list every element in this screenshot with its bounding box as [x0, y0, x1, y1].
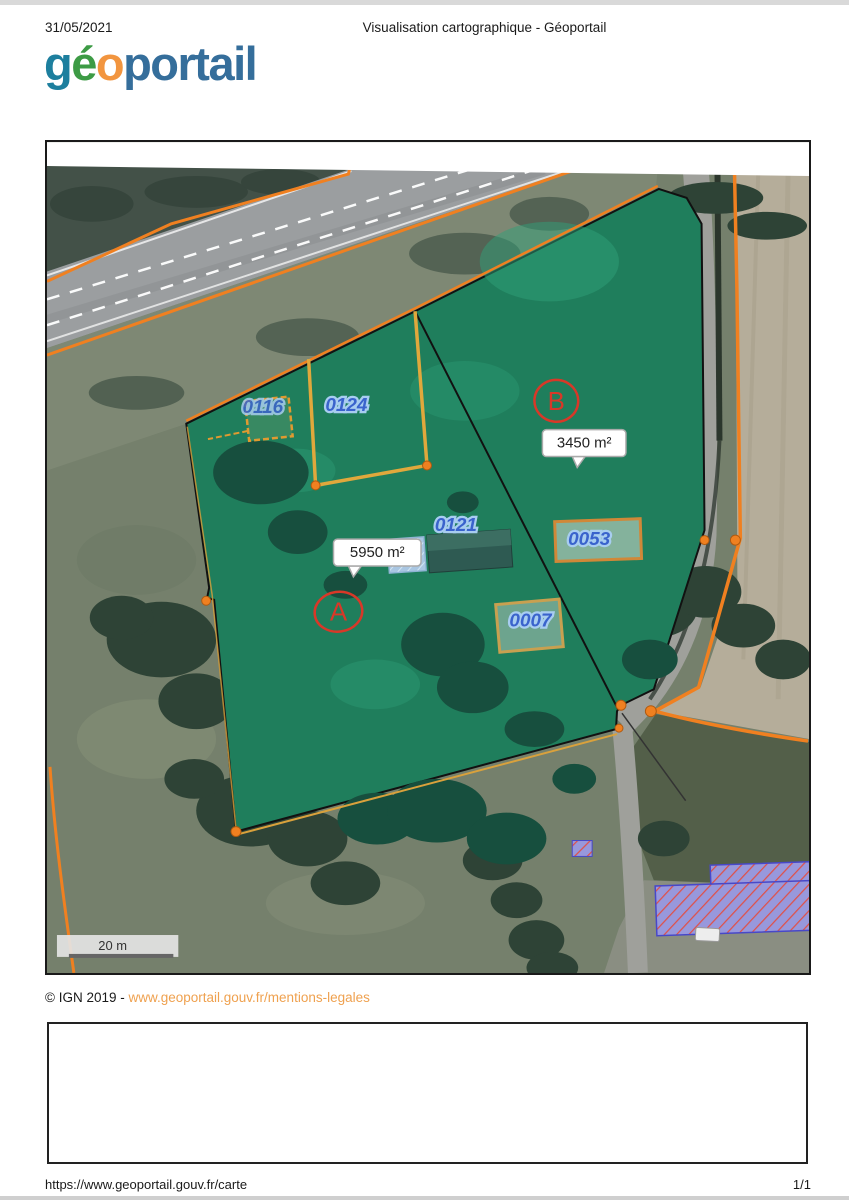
zone-letter-a: A: [330, 599, 348, 627]
logo-letter-o: o: [96, 37, 123, 90]
notes-box: [47, 1022, 808, 1164]
dark-field: [632, 714, 809, 886]
logo-letter-e: é: [71, 37, 96, 90]
parcel-label-0121: 0121: [435, 515, 477, 536]
source-url: https://www.geoportail.gouv.fr/carte: [45, 1177, 247, 1192]
copyright-text: © IGN 2019 -: [45, 990, 128, 1005]
geoportail-logo: géoportail: [44, 40, 256, 87]
area-value-zone-a: 5950 m²: [350, 544, 405, 561]
logo-letter-g: g: [44, 37, 71, 90]
parcel-label-0053: 0053: [568, 529, 611, 550]
area-value-zone-b: 3450 m²: [557, 435, 612, 452]
scale-bar-rule: [69, 954, 173, 958]
scan-artifact-strip: [0, 0, 849, 5]
copyright-line: © IGN 2019 - www.geoportail.gouv.fr/ment…: [45, 990, 370, 1005]
vehicle-white-parked: [695, 927, 720, 941]
scale-label: 20 m: [98, 938, 127, 953]
small-purple-structure: [572, 841, 592, 857]
page-number: 1/1: [793, 1177, 811, 1192]
logo-text-portail: portail: [123, 37, 256, 90]
parcel-label-0124: 0124: [325, 395, 368, 416]
grass-patch: [77, 525, 196, 595]
zone-letter-b: B: [548, 388, 565, 416]
scrub-vegetation: [89, 376, 184, 410]
legal-notice-link: www.geoportail.gouv.fr/mentions-legales: [128, 990, 369, 1005]
aerial-map: 0116 0124 0121 0053 0007 5950 m² 3450 m²…: [47, 142, 809, 973]
map-viewport: 0116 0124 0121 0053 0007 5950 m² 3450 m²…: [45, 140, 811, 975]
print-date: 31/05/2021: [45, 20, 113, 35]
scan-artifact-strip: [0, 1196, 849, 1200]
parcel-label-0007: 0007: [509, 611, 553, 632]
tree-canopy: [144, 176, 247, 208]
parcel-label-0116: 0116: [243, 397, 284, 418]
scale-bar: 20 m: [57, 935, 178, 958]
tree-canopy: [50, 186, 134, 222]
document-title: Visualisation cartographique - Géoportai…: [120, 20, 849, 35]
